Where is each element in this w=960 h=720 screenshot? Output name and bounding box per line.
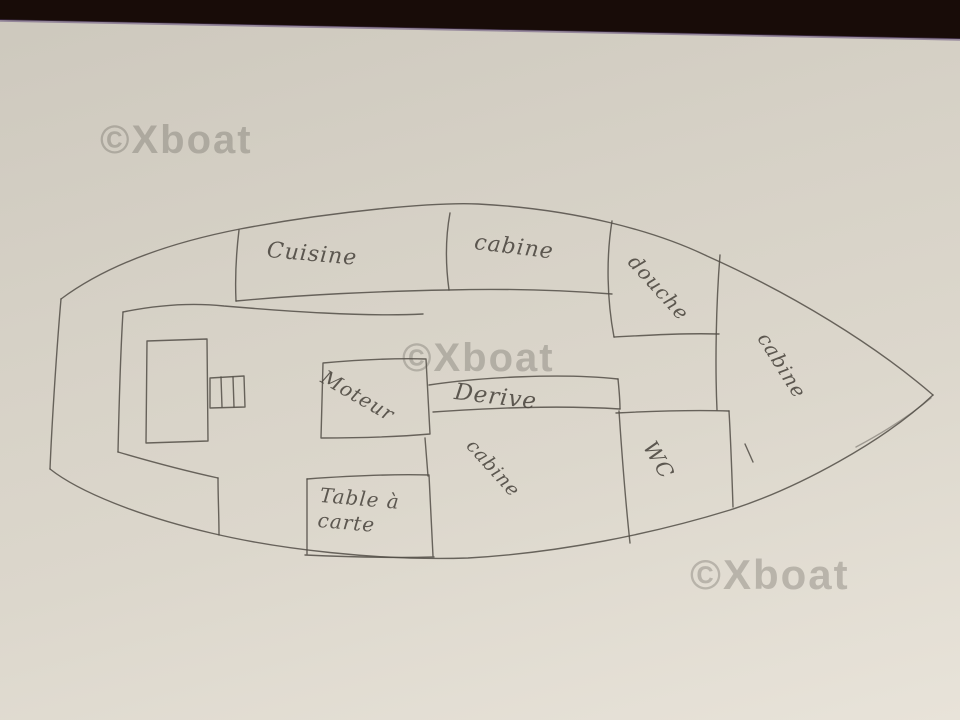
label-chart-table: Table à carte — [317, 483, 431, 542]
watermark-center: ©Xboat — [402, 336, 555, 381]
interior-partitions — [118, 213, 753, 557]
watermark-bottom-right: ©Xboat — [690, 551, 850, 599]
tick-mark — [745, 444, 753, 462]
watermark-top-left: ©Xboat — [100, 118, 253, 163]
label-chart-table-line2: carte — [317, 508, 376, 537]
companionway-steps — [210, 376, 245, 408]
photographed-sketch: Cuisine cabine douche cabine Moteur Deri… — [0, 0, 960, 720]
